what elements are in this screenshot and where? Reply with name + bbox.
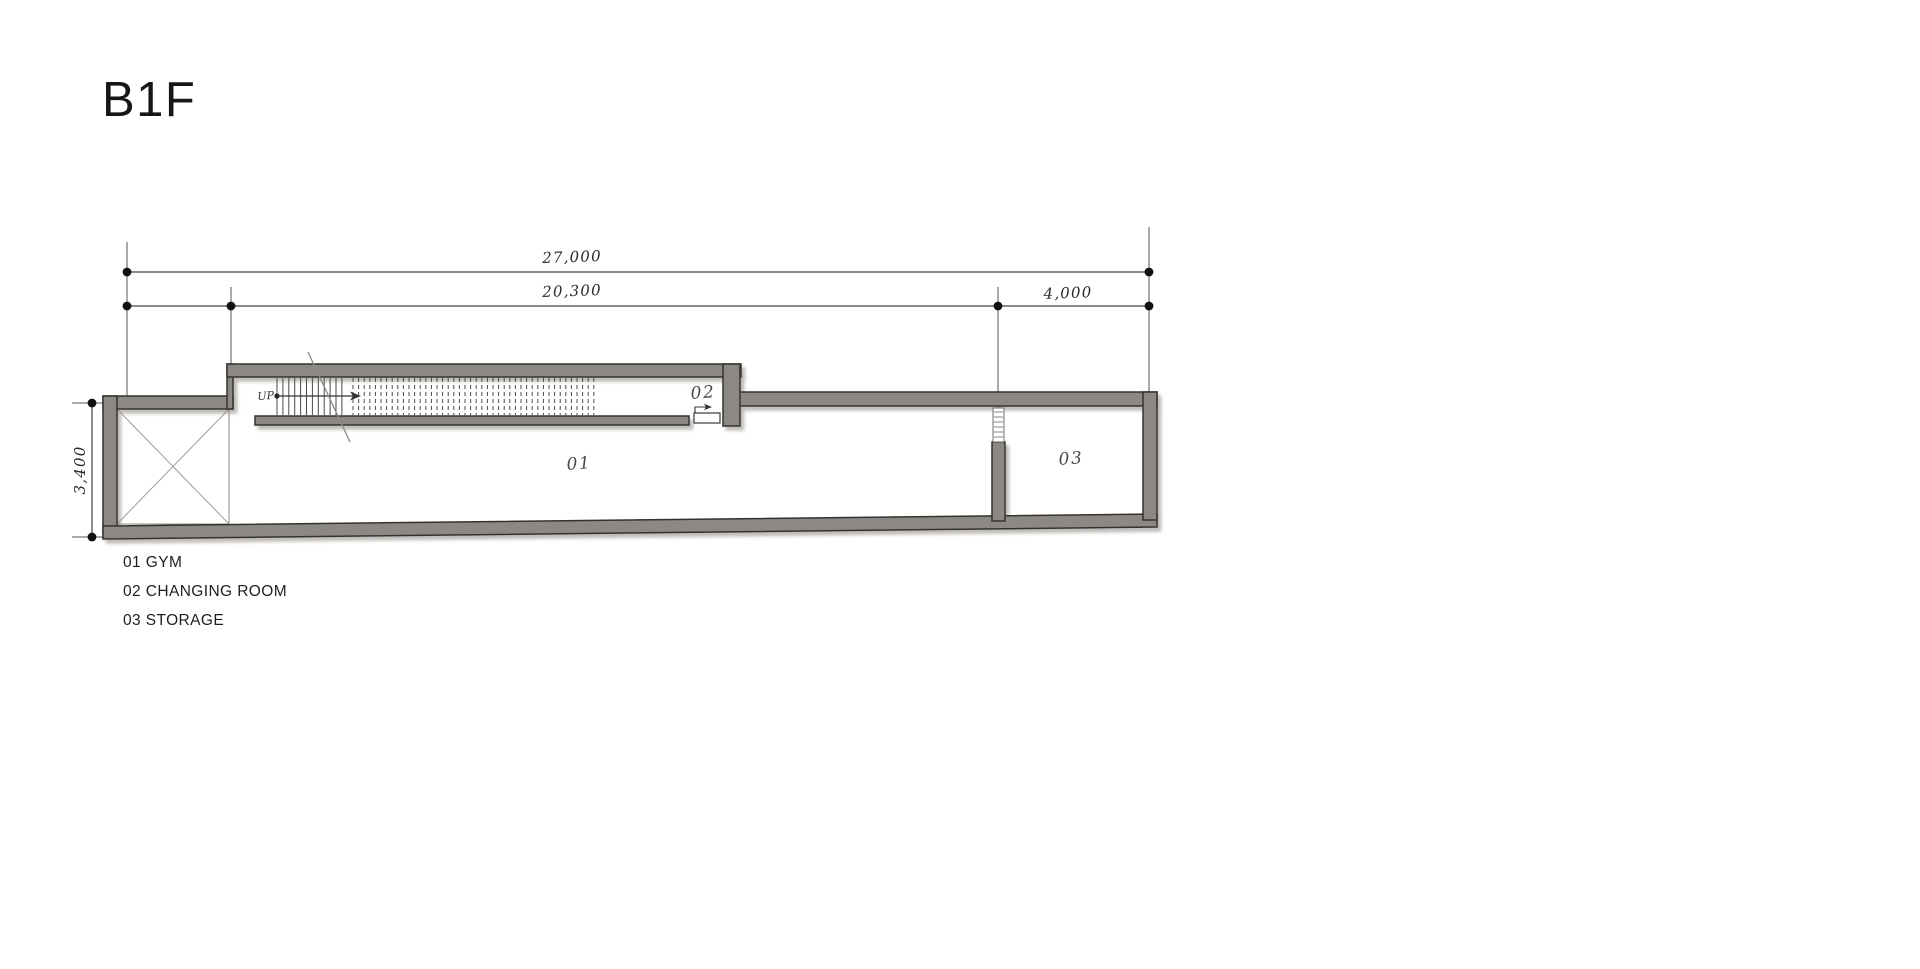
room-label-03: 03 [1058, 448, 1084, 470]
room-label-01: 01 [566, 453, 592, 475]
page-title: B1F [102, 72, 196, 128]
page: { "title": { "text": "B1F" }, "floor_pla… [0, 0, 1920, 969]
stair-up-label: UP [257, 389, 275, 403]
legend-room-name: STORAGE [146, 612, 224, 629]
room-03-door [993, 408, 1004, 442]
room-02-door [694, 404, 720, 423]
legend-room-number: 03 [123, 612, 141, 629]
legend-room-number: 01 [123, 554, 141, 571]
legend-item-storage: 03 STORAGE [123, 606, 287, 635]
legend-room-name: CHANGING ROOM [146, 583, 287, 600]
shaft-void [117, 409, 229, 524]
legend-room-number: 02 [123, 583, 141, 600]
dimension-label-total-width: 27,000 [542, 247, 602, 267]
dimension-label-depth: 3,400 [71, 446, 89, 495]
legend: 01 GYM 02 CHANGING ROOM 03 STORAGE [123, 548, 287, 635]
room-label-02: 02 [690, 382, 716, 404]
dimension-label-main-width: 20,300 [542, 281, 602, 301]
dimension-label-right-width: 4,000 [1043, 283, 1093, 303]
legend-item-changing-room: 02 CHANGING ROOM [123, 577, 287, 606]
floor-plan-drawing [0, 0, 1920, 969]
legend-room-name: GYM [146, 554, 183, 571]
legend-item-gym: 01 GYM [123, 548, 287, 577]
